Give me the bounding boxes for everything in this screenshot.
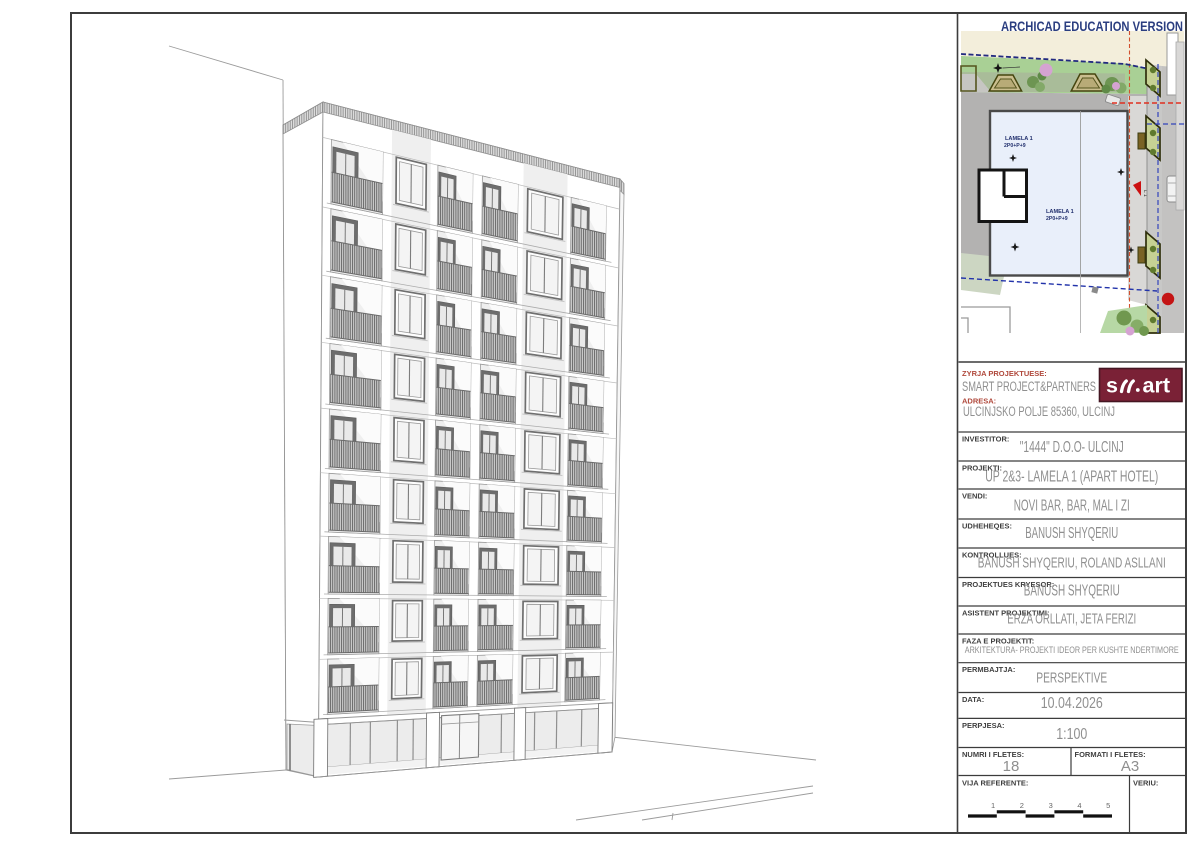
svg-text:s: s xyxy=(1106,374,1118,398)
svg-text:ULCINJSKO POLJE 85360, ULCINJ: ULCINJSKO POLJE 85360, ULCINJ xyxy=(963,404,1115,419)
svg-text:BANUSH SHYQERIU: BANUSH SHYQERIU xyxy=(1024,583,1120,600)
svg-text:SMART PROJECT&PARTNERS: SMART PROJECT&PARTNERS xyxy=(962,379,1096,394)
svg-text:PERSPEKTIVE: PERSPEKTIVE xyxy=(1036,670,1107,687)
svg-text:NOVI BAR, BAR, MAL I ZI: NOVI BAR, BAR, MAL I ZI xyxy=(1014,498,1130,515)
svg-text:ZYRJA PROJEKTUESE:: ZYRJA PROJEKTUESE: xyxy=(962,369,1047,378)
svg-text:INVESTITOR:: INVESTITOR: xyxy=(962,435,1009,444)
svg-text:BANUSH SHYQERIU, ROLAND ASLLAN: BANUSH SHYQERIU, ROLAND ASLLANI xyxy=(978,555,1166,572)
svg-text:3: 3 xyxy=(1049,801,1053,810)
svg-text:VENDI:: VENDI: xyxy=(962,492,987,501)
svg-text:PERPJESA:: PERPJESA: xyxy=(962,721,1005,730)
svg-text:A3: A3 xyxy=(1121,758,1139,775)
svg-text:VERIU:: VERIU: xyxy=(1133,779,1158,788)
svg-text:DATA:: DATA: xyxy=(962,695,984,704)
svg-text:"1444" D.O.O- ULCINJ: "1444" D.O.O- ULCINJ xyxy=(1020,439,1124,456)
svg-text:2P0+P+9: 2P0+P+9 xyxy=(1046,216,1068,222)
svg-text:UP 2&3- LAMELA 1 (APART HOTEL): UP 2&3- LAMELA 1 (APART HOTEL) xyxy=(985,469,1158,486)
svg-text:1:100: 1:100 xyxy=(1056,726,1087,743)
svg-text:BANUSH SHYQERIU: BANUSH SHYQERIU xyxy=(1025,525,1118,542)
svg-text:2: 2 xyxy=(1020,801,1024,810)
svg-text:LAMELA 1: LAMELA 1 xyxy=(1046,209,1074,215)
svg-text:4: 4 xyxy=(1077,801,1081,810)
svg-text:ERZA ORLLATI, JETA FERIZI: ERZA ORLLATI, JETA FERIZI xyxy=(1007,611,1136,628)
svg-text:ARKITEKTURA- PROJEKTI IDEOR PE: ARKITEKTURA- PROJEKTI IDEOR PER KUSHTE N… xyxy=(965,645,1179,656)
svg-text:1: 1 xyxy=(991,801,995,810)
svg-text:VIJA REFERENTE:: VIJA REFERENTE: xyxy=(962,779,1028,788)
svg-text:PERMBAJTJA:: PERMBAJTJA: xyxy=(962,665,1015,674)
svg-text:2P0+P+9: 2P0+P+9 xyxy=(1004,143,1026,149)
svg-text:10.04.2026: 10.04.2026 xyxy=(1041,695,1103,712)
svg-text:art: art xyxy=(1143,374,1170,398)
svg-text:5: 5 xyxy=(1106,801,1110,810)
svg-text:UDHEHEQES:: UDHEHEQES: xyxy=(962,522,1012,531)
svg-text:18: 18 xyxy=(1003,758,1020,775)
svg-text:LAMELA 1: LAMELA 1 xyxy=(1005,136,1033,142)
